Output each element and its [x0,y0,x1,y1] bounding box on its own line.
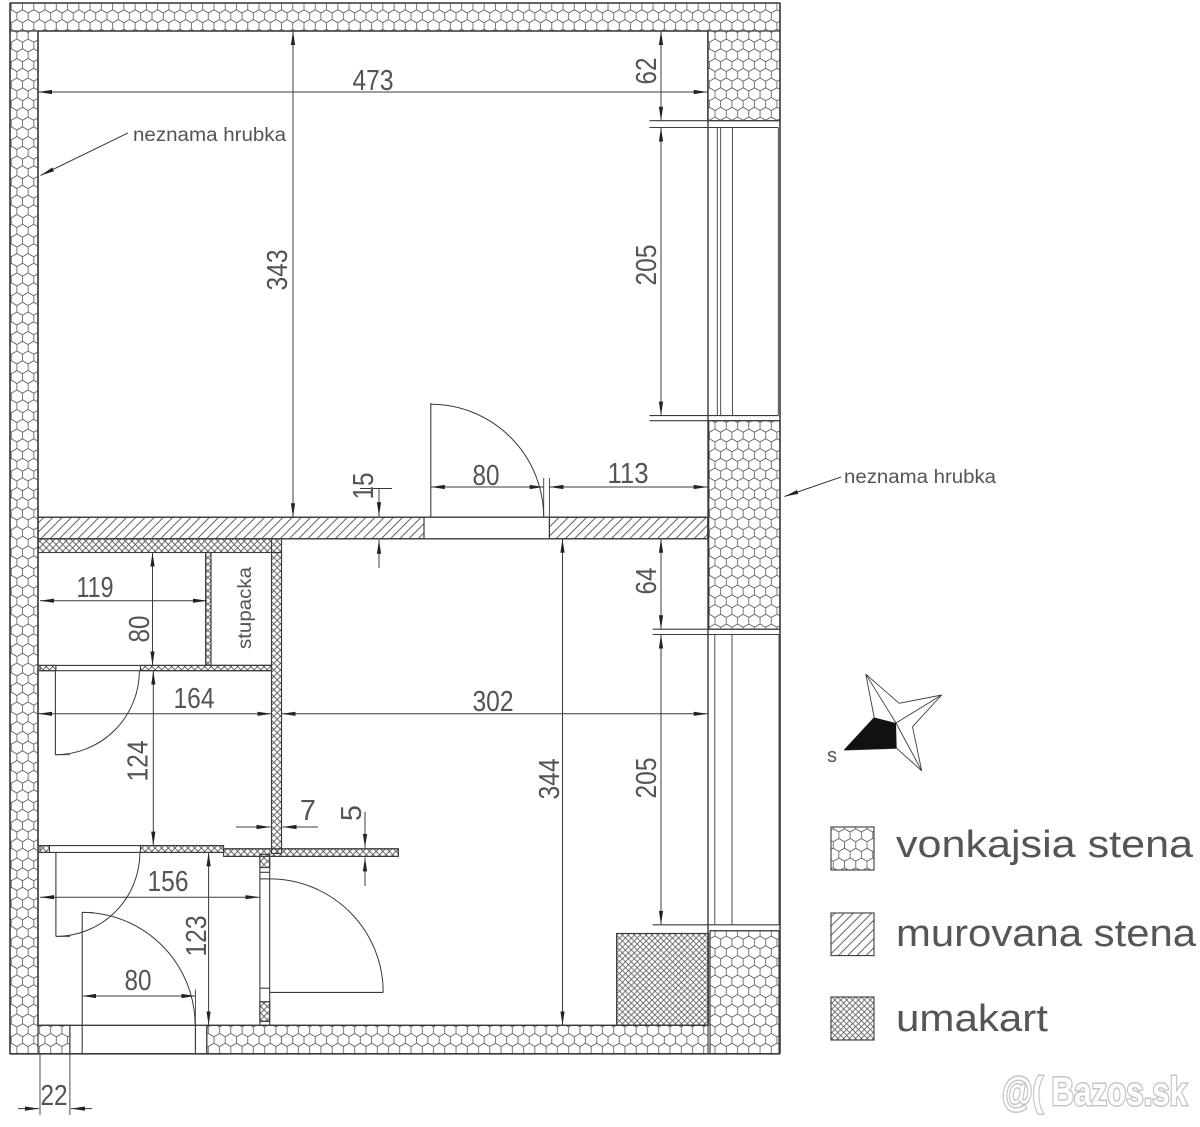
svg-text:473: 473 [353,65,394,97]
svg-text:80: 80 [124,616,156,643]
svg-text:80: 80 [473,460,500,492]
svg-text:5: 5 [336,805,368,821]
svg-text:vonkajsia stena: vonkajsia stena [896,824,1194,866]
svg-text:119: 119 [77,572,114,604]
svg-text:164: 164 [174,683,215,715]
svg-text:62: 62 [631,58,663,85]
svg-text:80: 80 [125,965,152,997]
svg-text:neznama hrubka: neznama hrubka [844,467,996,488]
svg-text:umakart: umakart [896,998,1048,1040]
svg-text:156: 156 [148,866,189,898]
svg-text:124: 124 [122,741,154,782]
svg-text:22: 22 [41,1080,68,1112]
svg-text:15: 15 [348,473,380,500]
svg-text:205: 205 [631,758,663,799]
svg-text:205: 205 [631,245,663,286]
svg-text:stupacka: stupacka [235,567,256,649]
svg-text:123: 123 [181,916,213,957]
svg-text:64: 64 [631,568,663,595]
svg-text:344: 344 [534,759,566,800]
svg-text:7: 7 [300,795,316,827]
svg-text:neznama hrubka: neznama hrubka [133,125,286,146]
svg-text:302: 302 [473,686,514,718]
svg-text:murovana stena: murovana stena [896,913,1197,955]
svg-text:@( Bazos.sk: @( Bazos.sk [1002,1070,1188,1114]
svg-text:113: 113 [608,458,649,490]
svg-text:s: s [827,745,837,767]
svg-text:343: 343 [262,250,294,291]
